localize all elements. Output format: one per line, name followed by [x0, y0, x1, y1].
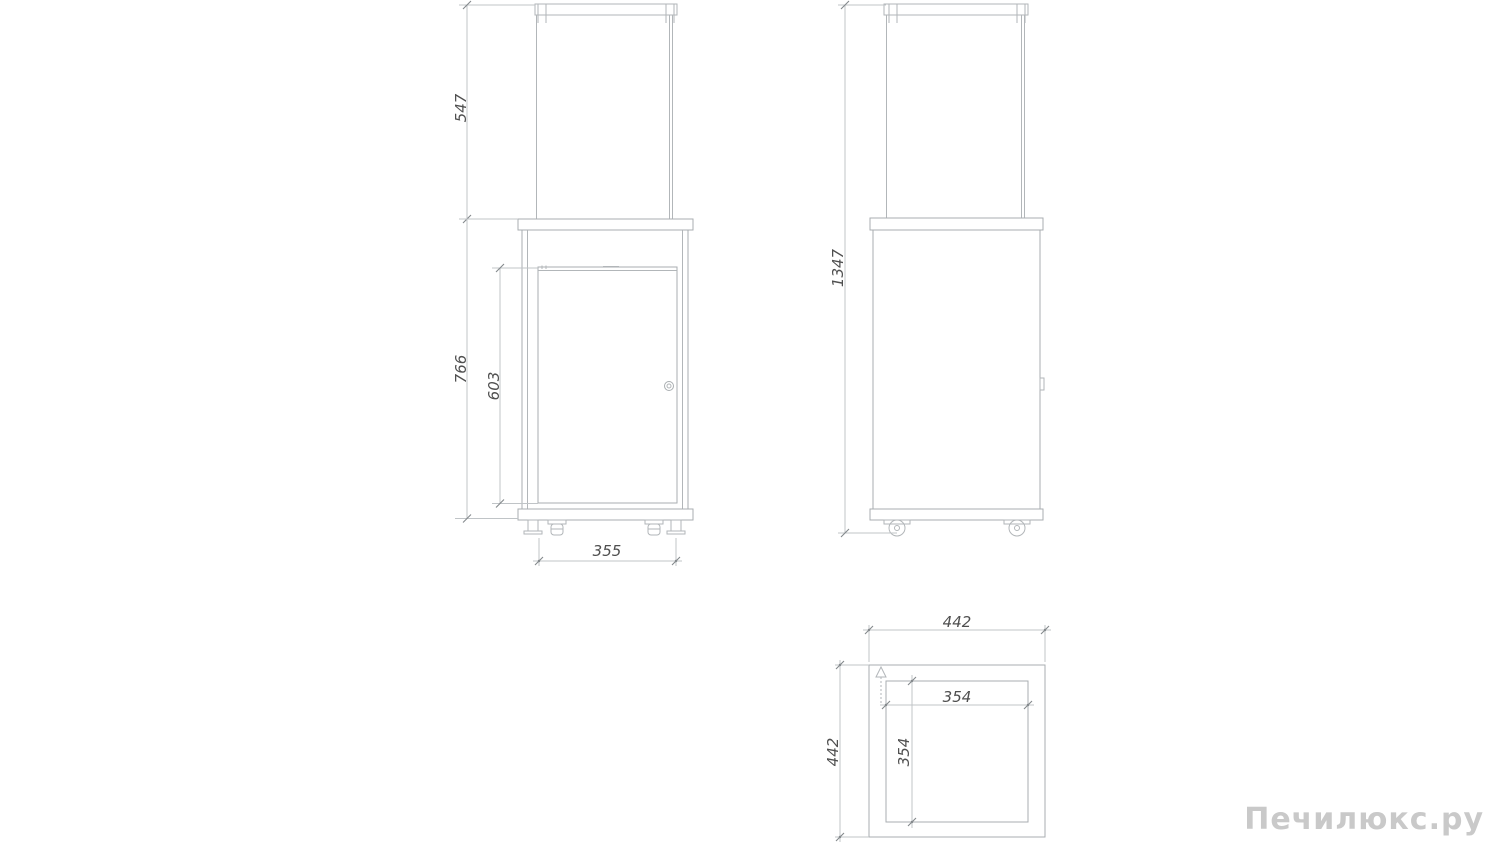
- technical-drawing: 547 766 603 355: [0, 0, 1500, 844]
- front-foot-right-stem: [671, 520, 681, 531]
- plan-view: 442 442 354 354: [824, 613, 1051, 842]
- dim-dot: [911, 821, 913, 823]
- front-glass-cap: [535, 4, 677, 15]
- dim-dot: [1044, 629, 1046, 631]
- front-body-inner-walls: [528, 230, 683, 509]
- side-caster-left-wheel: [889, 520, 905, 536]
- dim-dot: [538, 560, 540, 562]
- front-foot-left-stem: [528, 520, 538, 531]
- front-door-knob-center: [667, 384, 671, 388]
- dim-354-h-label: 354: [943, 688, 972, 706]
- dim-603-label: 603: [485, 372, 503, 401]
- drawing-canvas: { "views": { "front": { "name": "front-v…: [0, 0, 1500, 844]
- front-body: [522, 230, 688, 509]
- side-base-plate: [870, 509, 1043, 520]
- front-base-plate: [518, 509, 693, 520]
- front-foot-right-base: [667, 531, 685, 534]
- dim-dot: [675, 560, 677, 562]
- side-body: [873, 230, 1040, 509]
- dim-dot: [911, 680, 913, 682]
- side-caster-right-plate: [1004, 520, 1030, 524]
- front-top-shelf: [518, 219, 693, 230]
- dim-dot: [868, 629, 870, 631]
- side-glass-wall-right: [1022, 15, 1025, 218]
- dim-dot: [1027, 704, 1029, 706]
- side-glass-cap: [884, 4, 1028, 15]
- dim-354-v-label: 354: [895, 738, 913, 767]
- front-foot-left-base: [524, 531, 542, 534]
- dim-442-left-label: 442: [824, 738, 842, 767]
- front-cap-clip-left: [538, 4, 546, 23]
- front-caster-left-plate: [548, 520, 566, 524]
- front-glass-wall-right: [670, 15, 673, 219]
- side-top-shelf: [870, 218, 1043, 230]
- dim-355-label: 355: [593, 542, 622, 560]
- dim-547-label: 547: [452, 93, 470, 122]
- flow-arrow-icon: [876, 667, 886, 677]
- side-caster-right-wheel: [1009, 520, 1025, 536]
- side-caster-left-hub: [895, 526, 900, 531]
- dim-dot: [885, 704, 887, 706]
- dim-dot: [839, 664, 841, 666]
- dim-442-top-label: 442: [943, 613, 972, 631]
- front-door: [538, 267, 677, 503]
- side-caster-left-plate: [884, 520, 910, 524]
- front-view: 547 766 603 355: [452, 1, 693, 566]
- dim-766-label: 766: [452, 355, 470, 384]
- front-caster-right-plate: [645, 520, 663, 524]
- side-view: 1347: [829, 1, 1044, 537]
- side-door-handle: [1040, 378, 1044, 390]
- dim-1347-label: 1347: [829, 248, 847, 287]
- front-door-knob: [665, 382, 674, 391]
- watermark: Печилюкс.ру: [1244, 802, 1484, 837]
- dim-dot: [839, 836, 841, 838]
- side-caster-right-hub: [1015, 526, 1020, 531]
- side-cap-clip-left: [889, 4, 897, 23]
